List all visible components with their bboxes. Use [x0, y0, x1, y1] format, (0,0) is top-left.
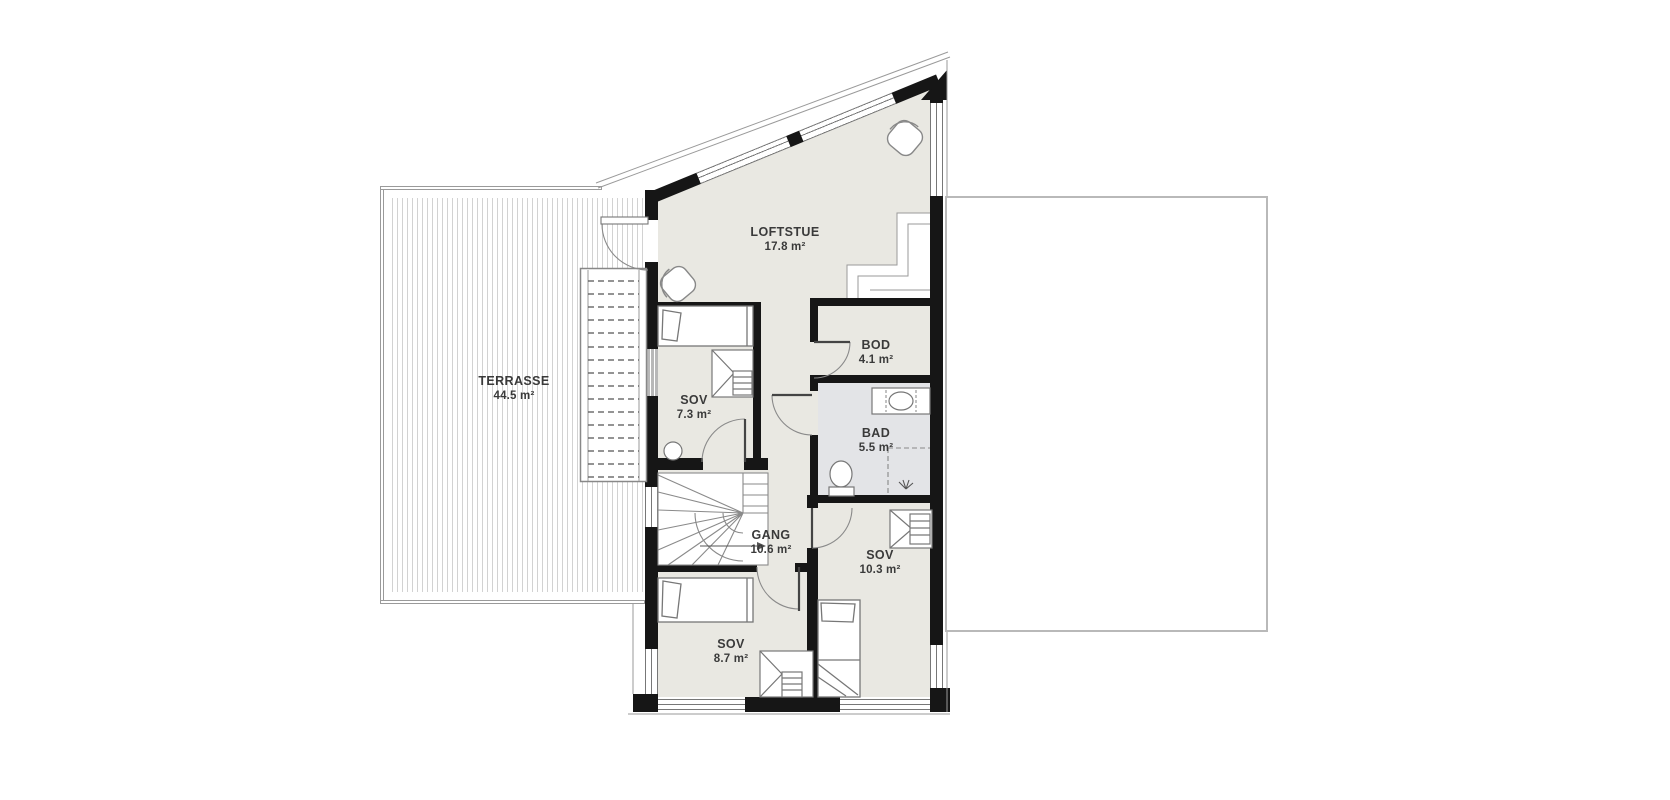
- room-area: 7.3 m²: [677, 410, 711, 422]
- room-label-sov-1: SOV 7.3 m²: [677, 394, 711, 421]
- wall-segment: [807, 563, 818, 697]
- room-area: 10.3 m²: [859, 565, 900, 577]
- window: [658, 699, 745, 710]
- wall-segment: [744, 458, 768, 470]
- room-name: TERRASSE: [478, 375, 549, 388]
- terrace-border-bottom: [380, 600, 645, 604]
- room-area: 17.8 m²: [750, 242, 819, 254]
- window: [930, 103, 943, 196]
- wall-segment: [645, 302, 761, 310]
- room-label-gang: GANG 10.6 m²: [750, 529, 791, 556]
- wall-segment: [645, 396, 658, 487]
- room-name: SOV: [677, 394, 711, 407]
- room-name: SOV: [714, 638, 748, 651]
- wall-segment: [810, 375, 930, 383]
- wall-segment: [930, 95, 943, 103]
- terrace-border-left: [380, 186, 384, 604]
- room-area: 4.1 m²: [859, 355, 893, 367]
- window: [645, 487, 658, 527]
- room-name: BOD: [859, 339, 893, 352]
- wall-segment: [810, 298, 818, 342]
- floor-plan: TERRASSE 44.5 m² LOFTSTUE 17.8 m² SOV 7.…: [0, 0, 1670, 800]
- terrace-border-top: [380, 186, 602, 190]
- lower-roof-outline: [945, 196, 1268, 632]
- wall-segment: [658, 563, 757, 572]
- wall-segment: [633, 694, 658, 712]
- room-label-bad: BAD 5.5 m²: [859, 427, 893, 454]
- wall-segment: [807, 495, 930, 503]
- room-label-bod: BOD 4.1 m²: [859, 339, 893, 366]
- wall-segment: [810, 383, 818, 391]
- room-label-terrasse: TERRASSE 44.5 m²: [478, 375, 549, 402]
- wall-segment: [745, 697, 840, 712]
- wall-segment: [645, 458, 703, 470]
- room-area: 8.7 m²: [714, 654, 748, 666]
- room-area: 10.6 m²: [750, 545, 791, 557]
- wall-segment: [930, 688, 950, 712]
- wall-segment: [807, 503, 818, 508]
- room-area: 5.5 m²: [859, 443, 893, 455]
- wall-segment: [753, 302, 761, 462]
- wall-segment: [810, 298, 930, 306]
- window: [645, 649, 658, 694]
- room-name: GANG: [750, 529, 791, 542]
- room-label-sov-3: SOV 8.7 m²: [714, 638, 748, 665]
- terrace-door-opening: [645, 220, 658, 262]
- wall-segment: [810, 435, 818, 503]
- window: [840, 699, 930, 710]
- room-label-loftstue: LOFTSTUE 17.8 m²: [750, 226, 819, 253]
- window: [645, 349, 658, 396]
- wall-segment: [930, 196, 943, 645]
- room-name: LOFTSTUE: [750, 226, 819, 239]
- room-area: 44.5 m²: [478, 391, 549, 403]
- wall-segment: [645, 527, 658, 649]
- room-name: BAD: [859, 427, 893, 440]
- room-name: SOV: [859, 549, 900, 562]
- window: [930, 645, 943, 688]
- room-label-sov-2: SOV 10.3 m²: [859, 549, 900, 576]
